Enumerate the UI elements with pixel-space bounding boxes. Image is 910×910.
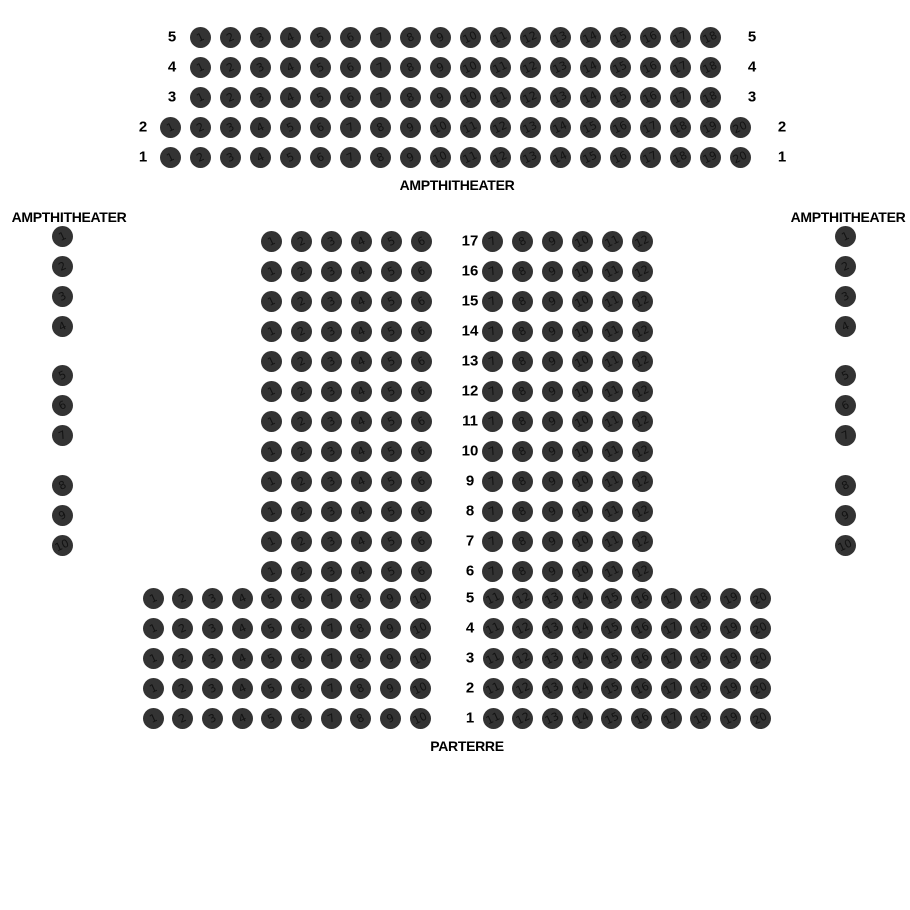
seat[interactable]: 4 <box>232 708 253 729</box>
seat[interactable]: 4 <box>351 561 372 582</box>
seat[interactable]: 4 <box>351 351 372 372</box>
seat[interactable]: 9 <box>542 531 563 552</box>
seat[interactable]: 4 <box>351 411 372 432</box>
seat[interactable]: 13 <box>542 618 563 639</box>
seat[interactable]: 15 <box>601 678 622 699</box>
seat[interactable]: 8 <box>512 321 533 342</box>
seat[interactable]: 12 <box>520 87 541 108</box>
seat[interactable]: 1 <box>143 708 164 729</box>
seat[interactable]: 3 <box>321 291 342 312</box>
seat[interactable]: 4 <box>351 381 372 402</box>
seat[interactable]: 13 <box>542 648 563 669</box>
seat[interactable]: 2 <box>220 27 241 48</box>
seat[interactable]: 7 <box>321 648 342 669</box>
seat[interactable]: 11 <box>490 57 511 78</box>
seat[interactable]: 6 <box>411 531 432 552</box>
seat[interactable]: 1 <box>261 261 282 282</box>
seat[interactable]: 5 <box>381 381 402 402</box>
seat[interactable]: 2 <box>172 588 193 609</box>
seat[interactable]: 6 <box>340 57 361 78</box>
seat[interactable]: 3 <box>220 117 241 138</box>
seat[interactable]: 20 <box>750 648 771 669</box>
seat[interactable]: 14 <box>550 147 571 168</box>
seat[interactable]: 17 <box>661 618 682 639</box>
seat[interactable]: 9 <box>542 501 563 522</box>
seat[interactable]: 19 <box>700 147 721 168</box>
seat[interactable]: 7 <box>482 501 503 522</box>
seat[interactable]: 11 <box>483 678 504 699</box>
seat[interactable]: 8 <box>512 291 533 312</box>
seat[interactable]: 7 <box>370 87 391 108</box>
seat[interactable]: 10 <box>572 231 593 252</box>
seat[interactable]: 15 <box>601 618 622 639</box>
seat[interactable]: 17 <box>661 708 682 729</box>
seat[interactable]: 3 <box>202 648 223 669</box>
seat[interactable]: 16 <box>610 147 631 168</box>
seat[interactable]: 8 <box>370 117 391 138</box>
seat[interactable]: 3 <box>321 381 342 402</box>
seat[interactable]: 10 <box>410 618 431 639</box>
seat[interactable]: 12 <box>632 351 653 372</box>
seat[interactable]: 10 <box>572 471 593 492</box>
seat[interactable]: 20 <box>750 678 771 699</box>
seat[interactable]: 3 <box>321 471 342 492</box>
seat[interactable]: 8 <box>512 531 533 552</box>
seat[interactable]: 6 <box>835 395 856 416</box>
seat[interactable]: 3 <box>321 261 342 282</box>
seat[interactable]: 14 <box>580 57 601 78</box>
seat[interactable]: 18 <box>690 588 711 609</box>
seat[interactable]: 5 <box>381 501 402 522</box>
seat[interactable]: 9 <box>380 588 401 609</box>
seat[interactable]: 5 <box>52 365 73 386</box>
seat[interactable]: 8 <box>370 147 391 168</box>
seat[interactable]: 11 <box>460 147 481 168</box>
seat[interactable]: 6 <box>310 117 331 138</box>
seat[interactable]: 17 <box>640 117 661 138</box>
seat[interactable]: 19 <box>720 618 741 639</box>
seat[interactable]: 11 <box>602 291 623 312</box>
seat[interactable]: 2 <box>190 147 211 168</box>
seat[interactable]: 12 <box>512 708 533 729</box>
seat[interactable]: 2 <box>291 441 312 462</box>
seat[interactable]: 10 <box>52 535 73 556</box>
seat[interactable]: 18 <box>700 27 721 48</box>
seat[interactable]: 12 <box>632 411 653 432</box>
seat[interactable]: 2 <box>291 561 312 582</box>
seat[interactable]: 16 <box>610 117 631 138</box>
seat[interactable]: 10 <box>572 531 593 552</box>
seat[interactable]: 3 <box>202 708 223 729</box>
seat[interactable]: 10 <box>572 291 593 312</box>
seat[interactable]: 2 <box>291 411 312 432</box>
seat[interactable]: 9 <box>542 411 563 432</box>
seat[interactable]: 9 <box>835 505 856 526</box>
seat[interactable]: 9 <box>380 648 401 669</box>
seat[interactable]: 10 <box>835 535 856 556</box>
seat[interactable]: 18 <box>700 57 721 78</box>
seat[interactable]: 3 <box>202 678 223 699</box>
seat[interactable]: 1 <box>261 441 282 462</box>
seat[interactable]: 9 <box>542 321 563 342</box>
seat[interactable]: 16 <box>631 708 652 729</box>
seat[interactable]: 19 <box>720 588 741 609</box>
seat[interactable]: 11 <box>483 708 504 729</box>
seat[interactable]: 5 <box>381 441 402 462</box>
seat[interactable]: 12 <box>490 147 511 168</box>
seat[interactable]: 12 <box>520 27 541 48</box>
seat[interactable]: 4 <box>250 147 271 168</box>
seat[interactable]: 2 <box>220 87 241 108</box>
seat[interactable]: 7 <box>340 147 361 168</box>
seat[interactable]: 15 <box>601 708 622 729</box>
seat[interactable]: 6 <box>291 648 312 669</box>
seat[interactable]: 8 <box>350 618 371 639</box>
seat[interactable]: 5 <box>310 57 331 78</box>
seat[interactable]: 1 <box>261 351 282 372</box>
seat[interactable]: 13 <box>550 87 571 108</box>
seat[interactable]: 3 <box>321 561 342 582</box>
seat[interactable]: 16 <box>631 618 652 639</box>
seat[interactable]: 8 <box>512 561 533 582</box>
seat[interactable]: 8 <box>512 501 533 522</box>
seat[interactable]: 2 <box>291 261 312 282</box>
seat[interactable]: 1 <box>143 648 164 669</box>
seat[interactable]: 2 <box>291 321 312 342</box>
seat[interactable]: 16 <box>640 87 661 108</box>
seat[interactable]: 3 <box>835 286 856 307</box>
seat[interactable]: 3 <box>220 147 241 168</box>
seat[interactable]: 15 <box>580 147 601 168</box>
seat[interactable]: 20 <box>730 117 751 138</box>
seat[interactable]: 8 <box>512 381 533 402</box>
seat[interactable]: 6 <box>411 381 432 402</box>
seat[interactable]: 12 <box>490 117 511 138</box>
seat[interactable]: 5 <box>381 291 402 312</box>
seat[interactable]: 1 <box>160 117 181 138</box>
seat[interactable]: 4 <box>351 471 372 492</box>
seat[interactable]: 10 <box>572 381 593 402</box>
seat[interactable]: 1 <box>261 501 282 522</box>
seat[interactable]: 9 <box>380 678 401 699</box>
seat[interactable]: 6 <box>52 395 73 416</box>
seat[interactable]: 2 <box>172 648 193 669</box>
seat[interactable]: 10 <box>572 441 593 462</box>
seat[interactable]: 7 <box>835 425 856 446</box>
seat[interactable]: 6 <box>411 501 432 522</box>
seat[interactable]: 20 <box>750 588 771 609</box>
seat[interactable]: 12 <box>512 618 533 639</box>
seat[interactable]: 8 <box>512 441 533 462</box>
seat[interactable]: 5 <box>280 117 301 138</box>
seat[interactable]: 3 <box>321 441 342 462</box>
seat[interactable]: 8 <box>400 57 421 78</box>
seat[interactable]: 7 <box>370 27 391 48</box>
seat[interactable]: 1 <box>52 226 73 247</box>
seat[interactable]: 3 <box>250 27 271 48</box>
seat[interactable]: 3 <box>321 321 342 342</box>
seat[interactable]: 1 <box>160 147 181 168</box>
seat[interactable]: 1 <box>190 87 211 108</box>
seat[interactable]: 15 <box>610 87 631 108</box>
seat[interactable]: 10 <box>572 501 593 522</box>
seat[interactable]: 1 <box>261 231 282 252</box>
seat[interactable]: 5 <box>310 27 331 48</box>
seat[interactable]: 4 <box>351 501 372 522</box>
seat[interactable]: 11 <box>602 261 623 282</box>
seat[interactable]: 7 <box>482 441 503 462</box>
seat[interactable]: 6 <box>411 471 432 492</box>
seat[interactable]: 9 <box>542 561 563 582</box>
seat[interactable]: 9 <box>400 147 421 168</box>
seat[interactable]: 9 <box>400 117 421 138</box>
seat[interactable]: 6 <box>291 618 312 639</box>
seat[interactable]: 12 <box>632 531 653 552</box>
seat[interactable]: 6 <box>291 708 312 729</box>
seat[interactable]: 1 <box>261 321 282 342</box>
seat[interactable]: 2 <box>291 351 312 372</box>
seat[interactable]: 12 <box>520 57 541 78</box>
seat[interactable]: 2 <box>291 291 312 312</box>
seat[interactable]: 10 <box>460 57 481 78</box>
seat[interactable]: 15 <box>610 27 631 48</box>
seat[interactable]: 6 <box>291 588 312 609</box>
seat[interactable]: 7 <box>482 231 503 252</box>
seat[interactable]: 3 <box>250 87 271 108</box>
seat[interactable]: 9 <box>430 27 451 48</box>
seat[interactable]: 2 <box>291 531 312 552</box>
seat[interactable]: 9 <box>430 87 451 108</box>
seat[interactable]: 11 <box>483 588 504 609</box>
seat[interactable]: 7 <box>340 117 361 138</box>
seat[interactable]: 3 <box>321 531 342 552</box>
seat[interactable]: 12 <box>632 291 653 312</box>
seat[interactable]: 5 <box>381 231 402 252</box>
seat[interactable]: 13 <box>550 57 571 78</box>
seat[interactable]: 8 <box>400 27 421 48</box>
seat[interactable]: 3 <box>202 618 223 639</box>
seat[interactable]: 6 <box>411 561 432 582</box>
seat[interactable]: 14 <box>550 117 571 138</box>
seat[interactable]: 8 <box>512 231 533 252</box>
seat[interactable]: 11 <box>490 27 511 48</box>
seat[interactable]: 11 <box>602 231 623 252</box>
seat[interactable]: 9 <box>542 261 563 282</box>
seat[interactable]: 17 <box>670 57 691 78</box>
seat[interactable]: 11 <box>602 531 623 552</box>
seat[interactable]: 8 <box>512 351 533 372</box>
seat[interactable]: 8 <box>400 87 421 108</box>
seat[interactable]: 12 <box>632 321 653 342</box>
seat[interactable]: 20 <box>750 708 771 729</box>
seat[interactable]: 11 <box>483 648 504 669</box>
seat[interactable]: 2 <box>172 678 193 699</box>
seat[interactable]: 7 <box>482 351 503 372</box>
seat[interactable]: 19 <box>720 678 741 699</box>
seat[interactable]: 4 <box>250 117 271 138</box>
seat[interactable]: 2 <box>190 117 211 138</box>
seat[interactable]: 8 <box>350 678 371 699</box>
seat[interactable]: 5 <box>381 531 402 552</box>
seat[interactable]: 9 <box>542 291 563 312</box>
seat[interactable]: 4 <box>232 588 253 609</box>
seat[interactable]: 6 <box>340 87 361 108</box>
seat[interactable]: 10 <box>572 561 593 582</box>
seat[interactable]: 9 <box>542 381 563 402</box>
seat[interactable]: 2 <box>835 256 856 277</box>
seat[interactable]: 2 <box>220 57 241 78</box>
seat[interactable]: 16 <box>631 588 652 609</box>
seat[interactable]: 12 <box>632 561 653 582</box>
seat[interactable]: 4 <box>351 441 372 462</box>
seat[interactable]: 2 <box>291 231 312 252</box>
seat[interactable]: 12 <box>632 261 653 282</box>
seat[interactable]: 7 <box>482 381 503 402</box>
seat[interactable]: 6 <box>411 411 432 432</box>
seat[interactable]: 13 <box>542 708 563 729</box>
seat[interactable]: 5 <box>310 87 331 108</box>
seat[interactable]: 14 <box>580 87 601 108</box>
seat[interactable]: 3 <box>202 588 223 609</box>
seat[interactable]: 11 <box>602 441 623 462</box>
seat[interactable]: 9 <box>380 618 401 639</box>
seat[interactable]: 9 <box>542 351 563 372</box>
seat[interactable]: 6 <box>310 147 331 168</box>
seat[interactable]: 5 <box>280 147 301 168</box>
seat[interactable]: 10 <box>460 87 481 108</box>
seat[interactable]: 16 <box>640 27 661 48</box>
seat[interactable]: 8 <box>350 648 371 669</box>
seat[interactable]: 9 <box>430 57 451 78</box>
seat[interactable]: 11 <box>602 411 623 432</box>
seat[interactable]: 3 <box>321 411 342 432</box>
seat[interactable]: 2 <box>291 381 312 402</box>
seat[interactable]: 16 <box>631 648 652 669</box>
seat[interactable]: 8 <box>350 708 371 729</box>
seat[interactable]: 11 <box>460 117 481 138</box>
seat[interactable]: 1 <box>261 561 282 582</box>
seat[interactable]: 6 <box>340 27 361 48</box>
seat[interactable]: 2 <box>52 256 73 277</box>
seat[interactable]: 10 <box>410 648 431 669</box>
seat[interactable]: 17 <box>640 147 661 168</box>
seat[interactable]: 9 <box>380 708 401 729</box>
seat[interactable]: 10 <box>410 678 431 699</box>
seat[interactable]: 10 <box>410 708 431 729</box>
seat[interactable]: 4 <box>232 678 253 699</box>
seat[interactable]: 1 <box>261 411 282 432</box>
seat[interactable]: 6 <box>411 321 432 342</box>
seat[interactable]: 1 <box>261 531 282 552</box>
seat[interactable]: 5 <box>835 365 856 386</box>
seat[interactable]: 4 <box>52 316 73 337</box>
seat[interactable]: 10 <box>572 261 593 282</box>
seat[interactable]: 7 <box>482 321 503 342</box>
seat[interactable]: 11 <box>602 321 623 342</box>
seat[interactable]: 13 <box>542 588 563 609</box>
seat[interactable]: 5 <box>381 471 402 492</box>
seat[interactable]: 4 <box>280 27 301 48</box>
seat[interactable]: 5 <box>381 411 402 432</box>
seat[interactable]: 8 <box>512 261 533 282</box>
seat[interactable]: 2 <box>291 501 312 522</box>
seat[interactable]: 7 <box>482 411 503 432</box>
seat[interactable]: 4 <box>835 316 856 337</box>
seat[interactable]: 1 <box>143 588 164 609</box>
seat[interactable]: 5 <box>261 648 282 669</box>
seat[interactable]: 6 <box>411 291 432 312</box>
seat[interactable]: 4 <box>280 57 301 78</box>
seat[interactable]: 11 <box>483 618 504 639</box>
seat[interactable]: 3 <box>321 501 342 522</box>
seat[interactable]: 11 <box>602 561 623 582</box>
seat[interactable]: 17 <box>661 588 682 609</box>
seat[interactable]: 9 <box>542 471 563 492</box>
seat[interactable]: 19 <box>720 708 741 729</box>
seat[interactable]: 7 <box>482 291 503 312</box>
seat[interactable]: 14 <box>572 618 593 639</box>
seat[interactable]: 2 <box>172 708 193 729</box>
seat[interactable]: 10 <box>572 411 593 432</box>
seat[interactable]: 18 <box>700 87 721 108</box>
seat[interactable]: 1 <box>143 678 164 699</box>
seat[interactable]: 15 <box>601 588 622 609</box>
seat[interactable]: 20 <box>730 147 751 168</box>
seat[interactable]: 5 <box>381 321 402 342</box>
seat[interactable]: 17 <box>661 678 682 699</box>
seat[interactable]: 5 <box>381 351 402 372</box>
seat[interactable]: 3 <box>250 57 271 78</box>
seat[interactable]: 11 <box>490 87 511 108</box>
seat[interactable]: 7 <box>321 678 342 699</box>
seat[interactable]: 11 <box>602 381 623 402</box>
seat[interactable]: 4 <box>232 648 253 669</box>
seat[interactable]: 10 <box>430 147 451 168</box>
seat[interactable]: 12 <box>632 471 653 492</box>
seat[interactable]: 12 <box>632 231 653 252</box>
seat[interactable]: 5 <box>381 261 402 282</box>
seat[interactable]: 17 <box>661 648 682 669</box>
seat[interactable]: 1 <box>261 291 282 312</box>
seat[interactable]: 4 <box>351 321 372 342</box>
seat[interactable]: 4 <box>351 261 372 282</box>
seat[interactable]: 8 <box>512 471 533 492</box>
seat[interactable]: 7 <box>370 57 391 78</box>
seat[interactable]: 19 <box>700 117 721 138</box>
seat[interactable]: 13 <box>520 147 541 168</box>
seat[interactable]: 11 <box>602 471 623 492</box>
seat[interactable]: 18 <box>690 708 711 729</box>
seat[interactable]: 6 <box>411 441 432 462</box>
seat[interactable]: 14 <box>572 708 593 729</box>
seat[interactable]: 10 <box>460 27 481 48</box>
seat[interactable]: 15 <box>580 117 601 138</box>
seat[interactable]: 17 <box>670 87 691 108</box>
seat[interactable]: 1 <box>835 226 856 247</box>
seat[interactable]: 20 <box>750 618 771 639</box>
seat[interactable]: 7 <box>321 618 342 639</box>
seat[interactable]: 7 <box>321 588 342 609</box>
seat[interactable]: 10 <box>430 117 451 138</box>
seat[interactable]: 7 <box>482 261 503 282</box>
seat[interactable]: 5 <box>261 678 282 699</box>
seat[interactable]: 9 <box>542 231 563 252</box>
seat[interactable]: 3 <box>52 286 73 307</box>
seat[interactable]: 11 <box>602 501 623 522</box>
seat[interactable]: 4 <box>280 87 301 108</box>
seat[interactable]: 12 <box>512 648 533 669</box>
seat[interactable]: 16 <box>631 678 652 699</box>
